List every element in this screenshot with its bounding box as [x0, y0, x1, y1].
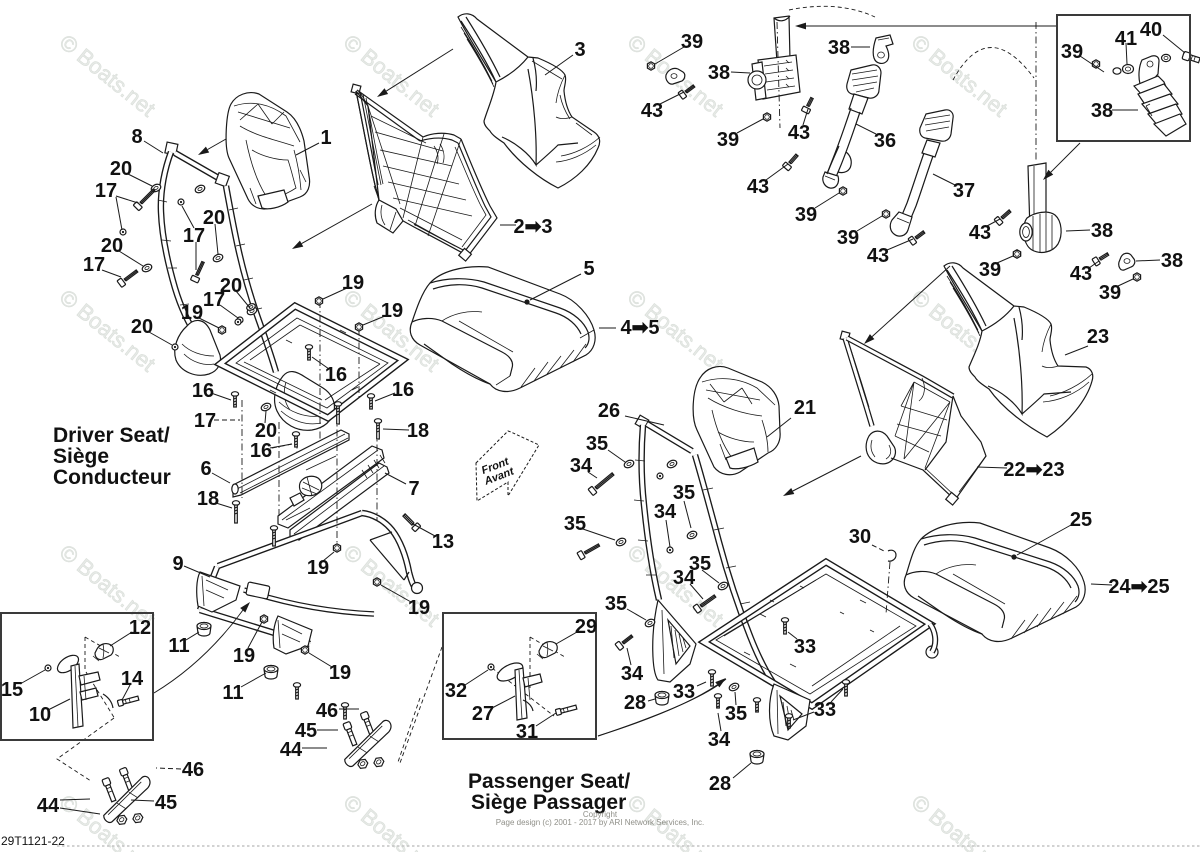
svg-text:39: 39	[795, 204, 817, 226]
svg-text:38: 38	[1091, 100, 1113, 122]
svg-text:10: 10	[29, 704, 51, 726]
svg-text:17: 17	[183, 225, 205, 247]
svg-text:38: 38	[828, 37, 850, 59]
svg-text:4➡5: 4➡5	[620, 317, 659, 339]
svg-text:7: 7	[408, 478, 419, 500]
svg-text:13: 13	[432, 531, 454, 553]
svg-text:11: 11	[168, 635, 189, 657]
svg-text:21: 21	[794, 397, 816, 419]
svg-text:20: 20	[203, 207, 225, 229]
svg-text:26: 26	[598, 400, 620, 422]
svg-text:35: 35	[689, 553, 711, 575]
svg-text:33: 33	[814, 699, 836, 721]
svg-text:8: 8	[131, 126, 142, 148]
svg-text:29: 29	[575, 616, 597, 638]
svg-text:35: 35	[605, 593, 627, 615]
svg-text:35: 35	[586, 433, 608, 455]
svg-text:Conducteur: Conducteur	[53, 466, 171, 489]
svg-text:20: 20	[131, 316, 153, 338]
svg-text:46: 46	[316, 700, 338, 722]
svg-text:16: 16	[325, 364, 347, 386]
svg-text:11: 11	[222, 682, 243, 704]
svg-text:46: 46	[182, 759, 204, 781]
svg-text:28: 28	[624, 692, 646, 714]
svg-text:14: 14	[121, 668, 144, 690]
svg-text:Driver Seat/: Driver Seat/	[53, 424, 170, 447]
svg-text:37: 37	[953, 180, 975, 202]
svg-text:17: 17	[83, 254, 105, 276]
svg-text:2➡3: 2➡3	[513, 216, 552, 238]
svg-text:43: 43	[867, 245, 889, 267]
svg-text:43: 43	[1070, 263, 1092, 285]
svg-text:Siège: Siège	[53, 445, 109, 468]
svg-text:Page design (c) 2001 - 2017 by: Page design (c) 2001 - 2017 by ARI Netwo…	[496, 818, 705, 827]
svg-text:35: 35	[725, 703, 747, 725]
svg-text:38: 38	[1091, 220, 1113, 242]
svg-text:32: 32	[445, 680, 467, 702]
svg-text:25: 25	[1070, 509, 1092, 531]
svg-text:20: 20	[110, 158, 132, 180]
svg-text:19: 19	[381, 300, 403, 322]
svg-text:43: 43	[641, 100, 663, 122]
svg-text:36: 36	[874, 130, 896, 152]
svg-text:28: 28	[709, 773, 731, 795]
svg-text:Passenger Seat/: Passenger Seat/	[468, 770, 630, 793]
svg-text:19: 19	[408, 597, 430, 619]
svg-text:39: 39	[1099, 282, 1121, 304]
svg-text:15: 15	[1, 679, 23, 701]
svg-text:19: 19	[329, 662, 351, 684]
svg-text:9: 9	[172, 553, 183, 575]
svg-text:34: 34	[570, 455, 593, 477]
svg-text:16: 16	[192, 380, 214, 402]
svg-text:20: 20	[255, 420, 277, 442]
svg-text:39: 39	[717, 129, 739, 151]
svg-text:18: 18	[197, 488, 219, 510]
svg-text:39: 39	[681, 31, 703, 53]
svg-text:17: 17	[203, 289, 225, 311]
svg-text:45: 45	[155, 792, 177, 814]
svg-text:17: 17	[95, 180, 117, 202]
svg-text:34: 34	[708, 729, 731, 751]
svg-text:30: 30	[849, 526, 871, 548]
svg-text:39: 39	[979, 259, 1001, 281]
svg-text:17: 17	[194, 410, 216, 432]
svg-text:12: 12	[129, 617, 151, 639]
svg-text:44: 44	[37, 795, 60, 817]
svg-text:44: 44	[280, 739, 303, 761]
svg-text:43: 43	[747, 176, 769, 198]
svg-text:27: 27	[472, 703, 494, 725]
svg-text:43: 43	[969, 222, 991, 244]
svg-text:35: 35	[673, 482, 695, 504]
svg-text:38: 38	[708, 62, 730, 84]
svg-text:43: 43	[788, 122, 810, 144]
svg-text:19: 19	[307, 557, 329, 579]
svg-text:31: 31	[516, 721, 538, 743]
svg-text:3: 3	[574, 39, 585, 61]
svg-text:24➡25: 24➡25	[1108, 576, 1169, 598]
svg-text:22➡23: 22➡23	[1003, 459, 1064, 481]
svg-text:16: 16	[392, 379, 414, 401]
svg-text:33: 33	[794, 636, 816, 658]
svg-text:40: 40	[1140, 19, 1162, 41]
svg-text:19: 19	[233, 645, 255, 667]
svg-text:33: 33	[673, 681, 695, 703]
svg-text:1: 1	[320, 127, 331, 149]
svg-text:16: 16	[250, 440, 272, 462]
svg-text:19: 19	[342, 272, 364, 294]
svg-text:6: 6	[200, 458, 211, 480]
svg-text:34: 34	[654, 501, 677, 523]
svg-text:18: 18	[407, 420, 429, 442]
svg-text:29T1121-22: 29T1121-22	[1, 834, 65, 848]
svg-text:34: 34	[621, 663, 644, 685]
svg-text:39: 39	[1061, 41, 1083, 63]
svg-text:23: 23	[1087, 326, 1109, 348]
svg-text:39: 39	[837, 227, 859, 249]
svg-text:5: 5	[583, 258, 594, 280]
svg-text:19: 19	[181, 302, 203, 324]
svg-text:38: 38	[1161, 250, 1183, 272]
svg-text:35: 35	[564, 513, 586, 535]
svg-text:41: 41	[1115, 28, 1137, 50]
